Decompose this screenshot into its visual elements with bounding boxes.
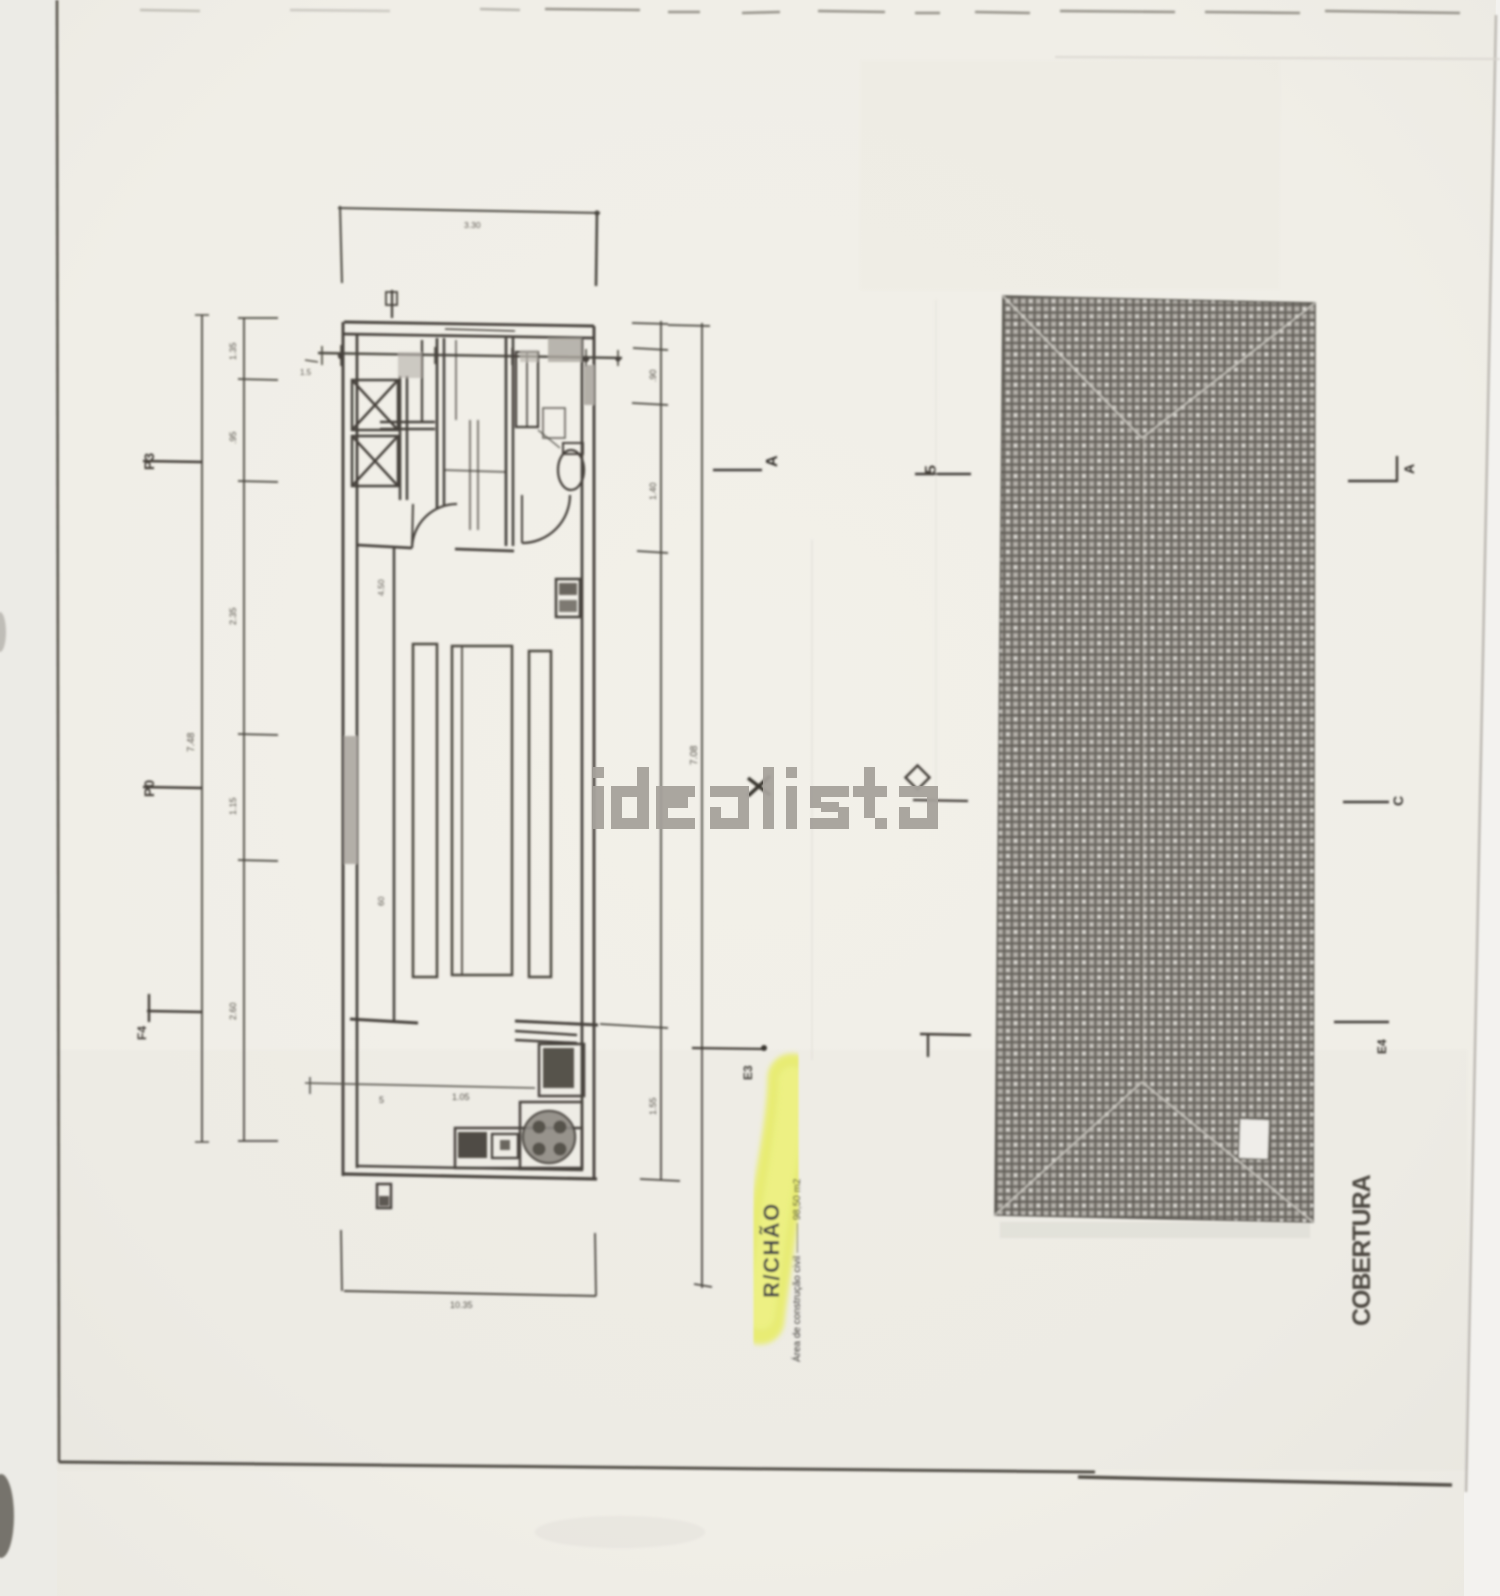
svg-text:1.40: 1.40 [648,482,658,500]
svg-text:1.15: 1.15 [228,797,238,815]
svg-text:F4: F4 [135,1026,149,1040]
svg-text:1.35: 1.35 [228,342,238,360]
svg-text:.90: .90 [648,369,658,382]
svg-text:A: A [1401,464,1417,474]
svg-text:2.35: 2.35 [228,607,238,625]
svg-text:.95: .95 [228,431,238,444]
svg-text:P3: P3 [141,453,157,470]
svg-text:4.50: 4.50 [376,579,386,596]
svg-text:7.08: 7.08 [689,745,700,765]
svg-text:7.48: 7.48 [186,732,197,752]
svg-text:60: 60 [376,896,386,906]
svg-text:2.60: 2.60 [228,1002,238,1020]
svg-text:5: 5 [923,465,940,474]
svg-text:3.30: 3.30 [464,220,481,230]
svg-text:C: C [1390,796,1406,806]
svg-text:1.5: 1.5 [300,368,312,377]
svg-text:P0: P0 [141,780,157,797]
svg-text:A: A [764,455,781,467]
